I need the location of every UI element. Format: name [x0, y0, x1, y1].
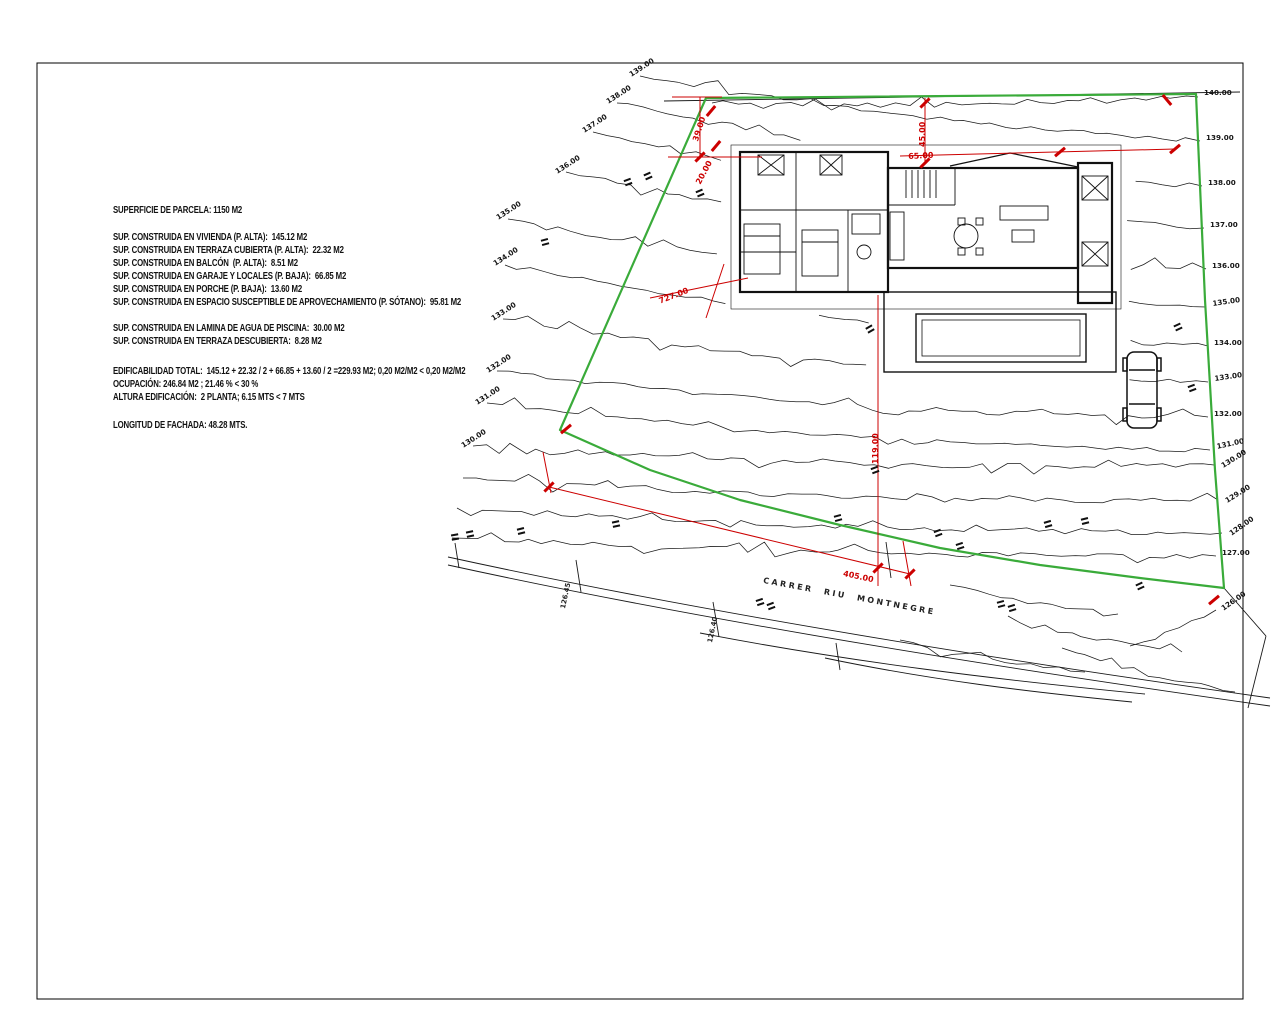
car — [1123, 352, 1161, 428]
site-plan-drawing — [0, 0, 1280, 1024]
drawing-sheet: SUPERFICIE DE PARCELA: 1150 M2 SUP. CONS… — [0, 0, 1280, 1024]
